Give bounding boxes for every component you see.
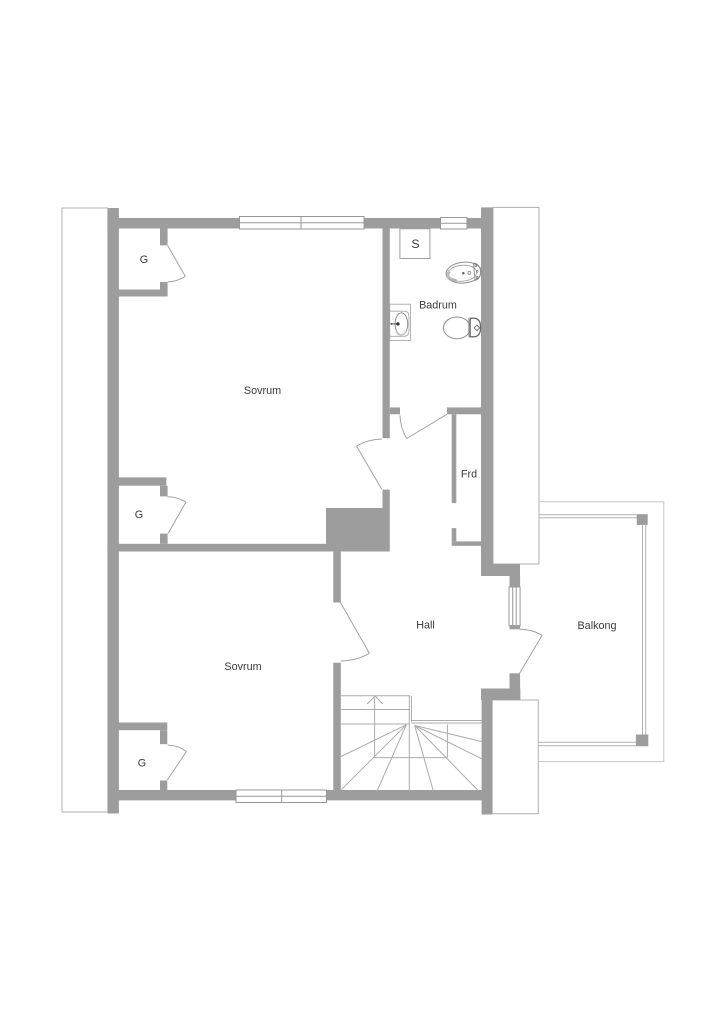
svg-text:Balkong: Balkong [577,620,616,632]
svg-text:G: G [135,509,143,521]
svg-text:Sovrum: Sovrum [224,661,261,673]
svg-text:S: S [411,237,419,251]
svg-text:Frd: Frd [461,469,477,481]
svg-text:Hall: Hall [416,619,435,631]
svg-text:G: G [140,254,148,266]
svg-text:Badrum: Badrum [419,300,457,312]
svg-text:Sovrum: Sovrum [244,385,281,397]
svg-text:G: G [138,757,146,769]
